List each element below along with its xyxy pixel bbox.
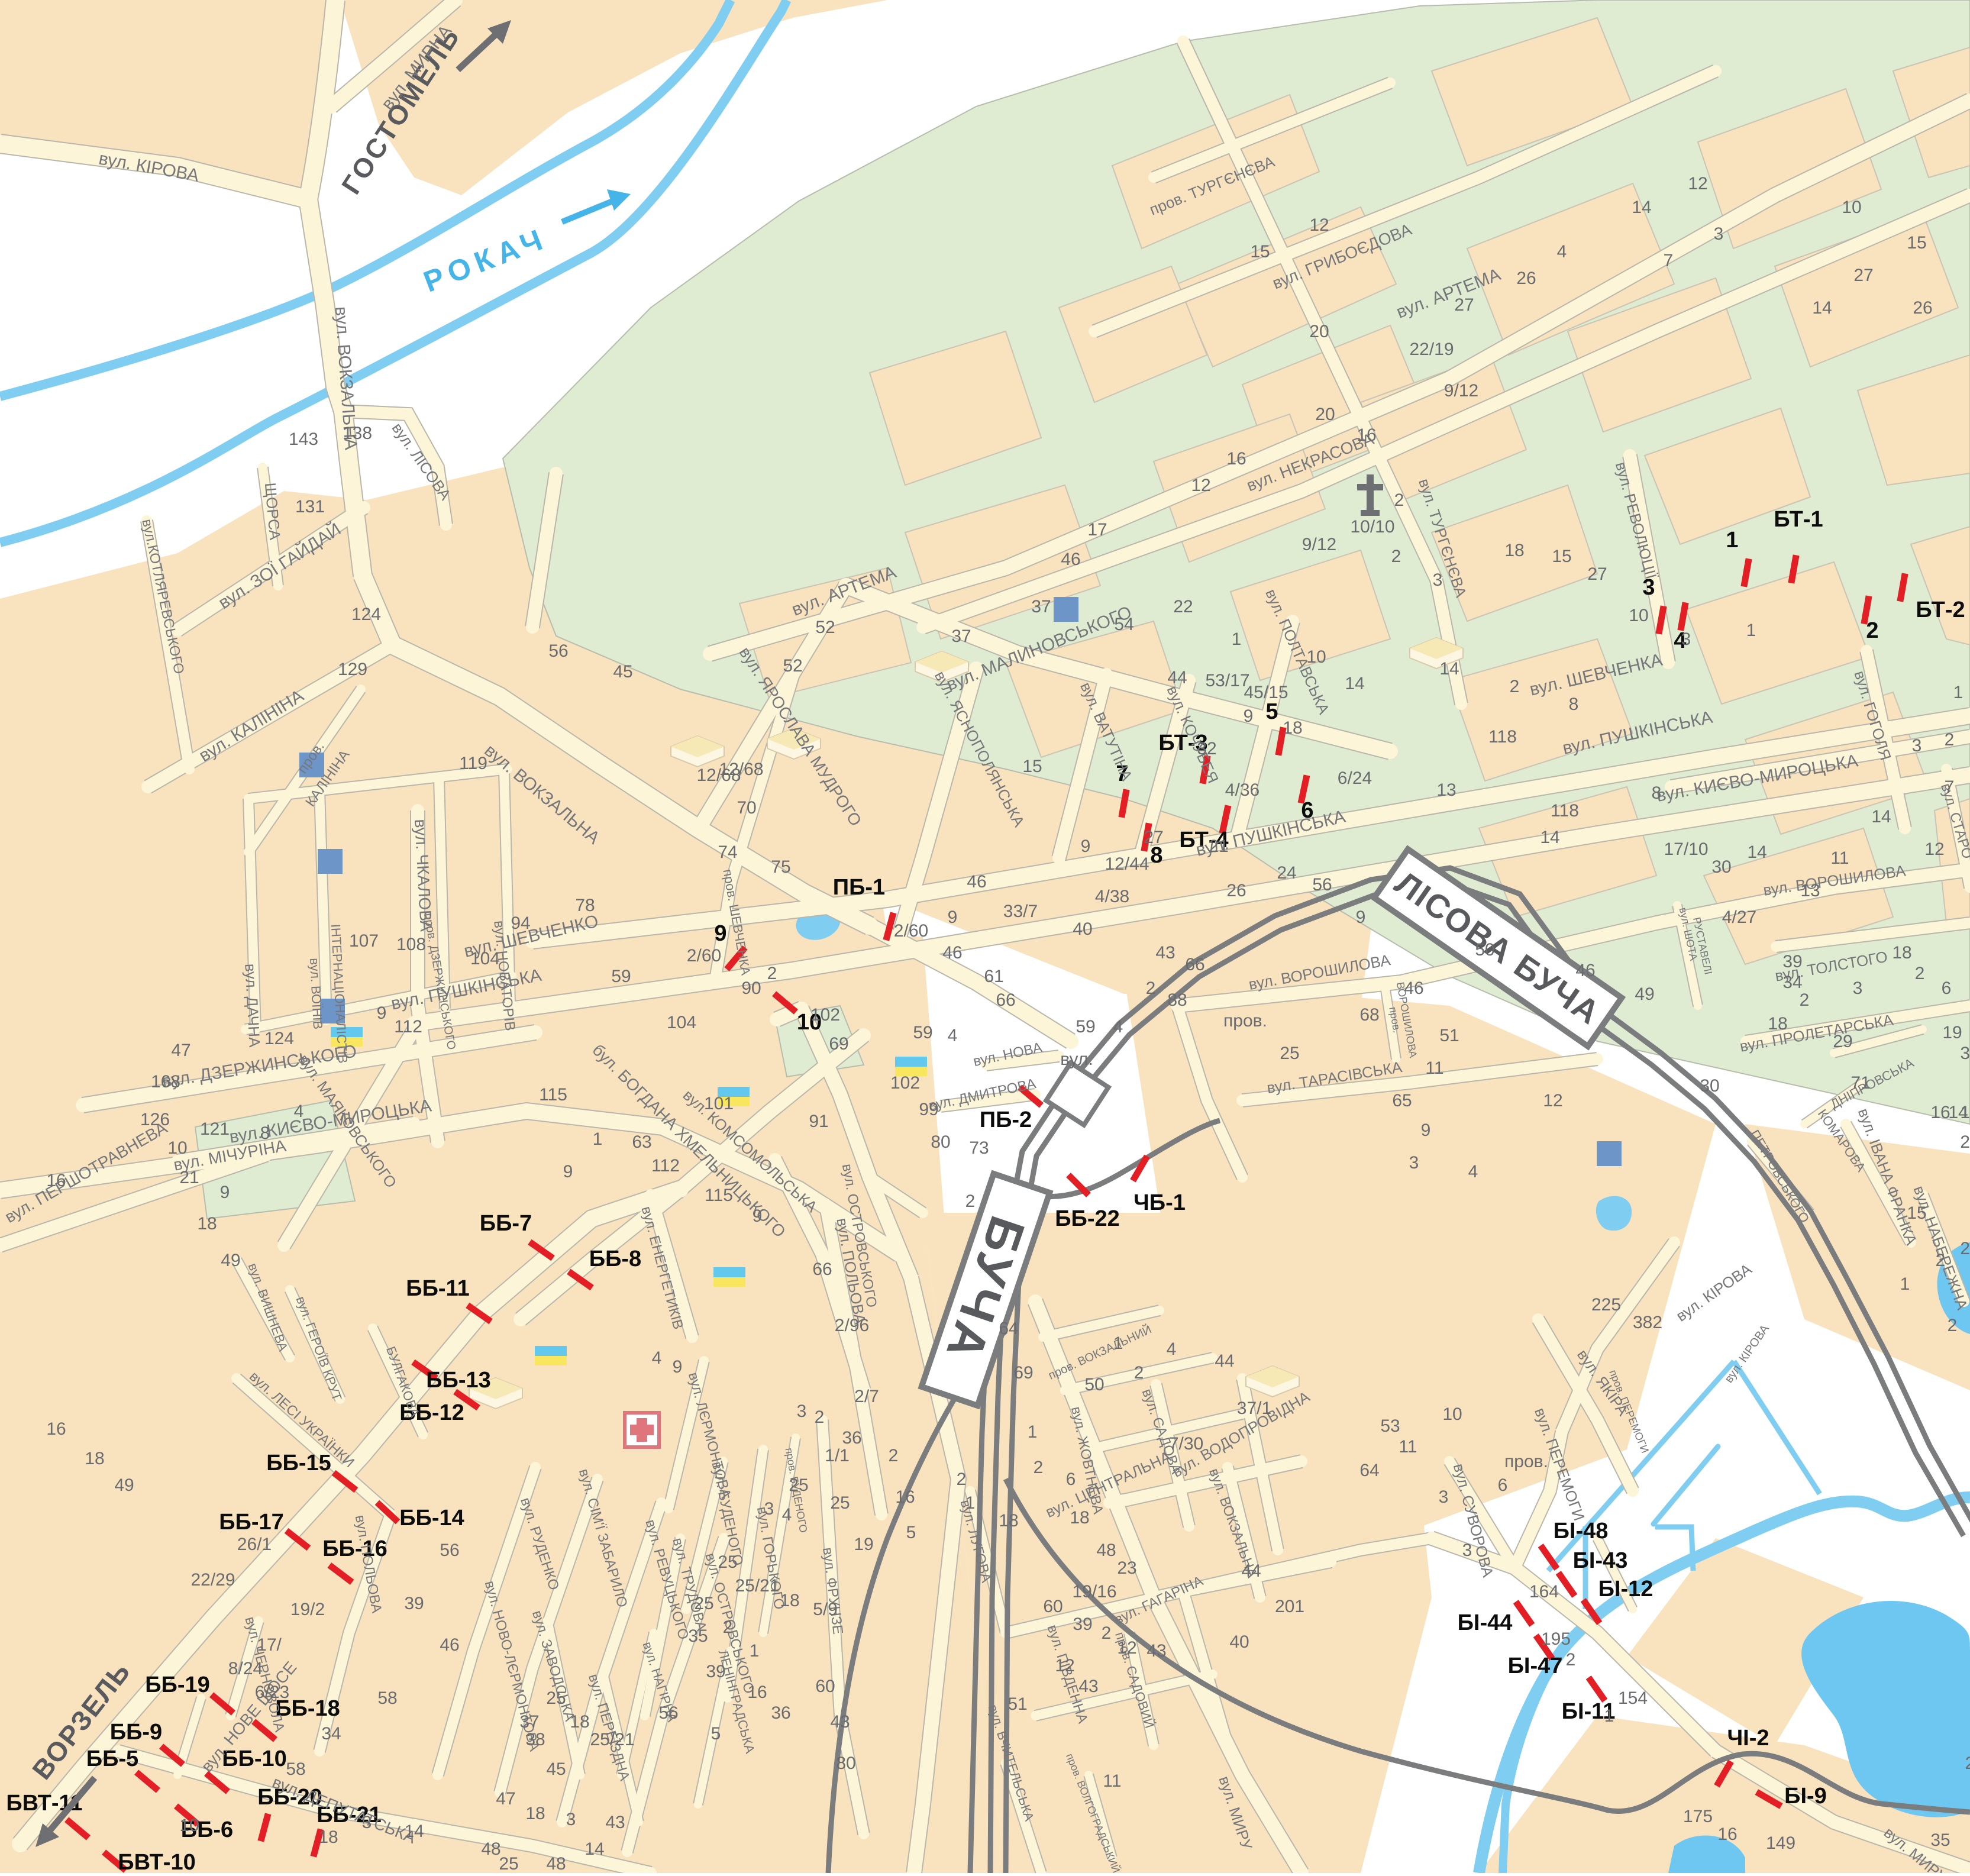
svg-text:9: 9 xyxy=(1356,908,1366,927)
svg-text:107: 107 xyxy=(349,931,379,951)
svg-text:ББ-8: ББ-8 xyxy=(589,1247,641,1271)
svg-text:149: 149 xyxy=(1766,1833,1795,1853)
svg-text:4: 4 xyxy=(294,1102,304,1121)
svg-text:91: 91 xyxy=(809,1112,828,1131)
svg-text:18: 18 xyxy=(1283,718,1302,738)
svg-text:108: 108 xyxy=(396,935,426,954)
svg-text:16: 16 xyxy=(1717,1825,1737,1844)
svg-text:68: 68 xyxy=(1359,1005,1379,1025)
svg-text:43: 43 xyxy=(830,1712,850,1732)
svg-text:131: 131 xyxy=(295,497,325,516)
svg-text:ББ-5: ББ-5 xyxy=(86,1746,138,1771)
svg-text:9: 9 xyxy=(1421,1121,1431,1140)
svg-text:ББ-22: ББ-22 xyxy=(1055,1206,1120,1231)
svg-text:3: 3 xyxy=(1462,1541,1472,1560)
svg-text:2: 2 xyxy=(1948,1316,1958,1335)
svg-text:ББ-17: ББ-17 xyxy=(219,1510,284,1535)
svg-text:382: 382 xyxy=(1633,1313,1662,1332)
svg-text:2: 2 xyxy=(1800,990,1810,1010)
svg-text:6: 6 xyxy=(1942,979,1952,998)
svg-text:18: 18 xyxy=(1070,1508,1089,1528)
svg-text:18: 18 xyxy=(85,1449,104,1468)
svg-text:17: 17 xyxy=(1087,520,1107,540)
svg-text:59: 59 xyxy=(1076,1017,1095,1037)
svg-text:54: 54 xyxy=(1114,615,1133,634)
svg-text:ЧІ-2: ЧІ-2 xyxy=(1727,1726,1769,1751)
svg-text:64: 64 xyxy=(1359,1461,1379,1480)
svg-text:1: 1 xyxy=(750,1641,760,1661)
svg-text:8: 8 xyxy=(260,1123,270,1143)
svg-text:51: 51 xyxy=(1439,1026,1459,1045)
svg-text:2: 2 xyxy=(889,1446,899,1465)
svg-text:2: 2 xyxy=(1915,964,1925,983)
svg-text:88: 88 xyxy=(1167,990,1187,1010)
svg-text:БІ-9: БІ-9 xyxy=(1784,1784,1827,1809)
svg-text:2/96: 2/96 xyxy=(835,1316,869,1335)
svg-text:4: 4 xyxy=(652,1348,662,1368)
svg-text:27: 27 xyxy=(1587,564,1607,584)
svg-text:38: 38 xyxy=(525,1730,545,1749)
svg-text:43: 43 xyxy=(605,1813,625,1832)
svg-text:16: 16 xyxy=(1226,449,1246,469)
svg-text:49: 49 xyxy=(1635,984,1654,1004)
svg-text:10: 10 xyxy=(1842,198,1861,217)
svg-text:9/12: 9/12 xyxy=(1444,381,1478,401)
svg-text:БІ-48: БІ-48 xyxy=(1554,1519,1609,1544)
svg-text:14: 14 xyxy=(1439,659,1459,679)
svg-text:10: 10 xyxy=(179,1816,199,1835)
svg-text:64: 64 xyxy=(999,1319,1018,1338)
svg-text:17/10: 17/10 xyxy=(1664,839,1708,859)
svg-text:12: 12 xyxy=(1960,1103,1970,1122)
svg-text:18: 18 xyxy=(1892,943,1911,963)
svg-text:3: 3 xyxy=(1439,1487,1449,1507)
svg-text:43: 43 xyxy=(1155,943,1175,963)
svg-text:99: 99 xyxy=(919,1100,938,1119)
svg-text:12/68: 12/68 xyxy=(696,766,741,785)
svg-text:102: 102 xyxy=(890,1073,920,1093)
svg-text:119: 119 xyxy=(459,754,487,773)
svg-text:60: 60 xyxy=(1043,1597,1062,1616)
svg-text:50: 50 xyxy=(1475,940,1494,960)
svg-text:15: 15 xyxy=(1552,547,1571,566)
svg-text:59: 59 xyxy=(611,967,631,986)
svg-text:15: 15 xyxy=(1022,757,1042,776)
svg-text:34: 34 xyxy=(1782,973,1802,992)
svg-text:37: 37 xyxy=(951,627,971,646)
svg-text:13: 13 xyxy=(1436,780,1456,800)
svg-text:112: 112 xyxy=(394,1017,422,1037)
svg-text:ПБ-1: ПБ-1 xyxy=(833,875,885,900)
svg-text:124: 124 xyxy=(264,1029,294,1048)
svg-text:70: 70 xyxy=(737,798,756,818)
svg-text:104: 104 xyxy=(667,1013,696,1032)
svg-text:37: 37 xyxy=(1031,597,1051,616)
svg-text:11: 11 xyxy=(1399,1437,1417,1457)
svg-text:15: 15 xyxy=(1250,242,1270,261)
svg-text:56: 56 xyxy=(548,641,568,661)
svg-text:66: 66 xyxy=(996,990,1015,1010)
svg-text:101: 101 xyxy=(704,1094,734,1113)
svg-text:48: 48 xyxy=(546,1854,566,1873)
svg-text:20: 20 xyxy=(1315,405,1335,424)
svg-text:6/24: 6/24 xyxy=(1338,769,1372,788)
svg-text:138: 138 xyxy=(343,424,372,443)
svg-text:56: 56 xyxy=(440,1541,459,1560)
svg-text:51: 51 xyxy=(1007,1694,1027,1714)
svg-text:69: 69 xyxy=(829,1034,848,1054)
svg-text:23: 23 xyxy=(1117,1558,1136,1578)
svg-text:2: 2 xyxy=(1146,979,1156,998)
svg-text:ПБ-2: ПБ-2 xyxy=(980,1107,1032,1132)
svg-text:143: 143 xyxy=(289,430,318,449)
svg-text:154: 154 xyxy=(1618,1688,1648,1708)
svg-text:1: 1 xyxy=(1746,621,1756,640)
svg-text:80: 80 xyxy=(931,1132,950,1152)
svg-text:66: 66 xyxy=(1185,955,1204,974)
svg-text:16: 16 xyxy=(46,1419,66,1439)
svg-text:71: 71 xyxy=(1850,1073,1870,1093)
svg-text:15: 15 xyxy=(1907,233,1926,253)
svg-text:59: 59 xyxy=(913,1023,932,1042)
svg-text:30: 30 xyxy=(1711,857,1731,877)
svg-text:1: 1 xyxy=(1604,1706,1614,1726)
svg-text:14: 14 xyxy=(1345,674,1364,693)
svg-text:13: 13 xyxy=(1800,881,1820,900)
svg-text:46: 46 xyxy=(1575,961,1595,980)
svg-text:7/30: 7/30 xyxy=(1169,1434,1203,1454)
svg-text:90: 90 xyxy=(741,979,761,998)
svg-text:45: 45 xyxy=(613,662,632,682)
svg-text:37/1: 37/1 xyxy=(1237,1399,1271,1418)
svg-text:49: 49 xyxy=(114,1475,134,1495)
svg-text:2/7: 2/7 xyxy=(854,1387,879,1406)
svg-text:11: 11 xyxy=(1425,1058,1443,1078)
svg-text:12: 12 xyxy=(1191,476,1210,495)
svg-text:39: 39 xyxy=(706,1662,725,1681)
svg-text:25: 25 xyxy=(1280,1044,1299,1063)
svg-text:1: 1 xyxy=(593,1129,603,1149)
svg-text:1: 1 xyxy=(1028,1422,1038,1442)
svg-text:2/60: 2/60 xyxy=(894,921,928,941)
svg-text:25: 25 xyxy=(789,1475,808,1495)
svg-text:37: 37 xyxy=(519,1712,539,1732)
svg-text:1: 1 xyxy=(1113,1333,1123,1353)
svg-text:78: 78 xyxy=(575,896,595,915)
svg-text:БІ-43: БІ-43 xyxy=(1573,1548,1628,1573)
svg-text:1: 1 xyxy=(965,1493,976,1513)
svg-text:44: 44 xyxy=(1167,668,1187,687)
svg-text:35: 35 xyxy=(688,1626,708,1646)
svg-text:16: 16 xyxy=(1357,425,1376,445)
svg-text:19/2: 19/2 xyxy=(290,1600,325,1619)
svg-text:12: 12 xyxy=(1309,215,1329,235)
svg-text:6: 6 xyxy=(1066,1470,1076,1489)
svg-text:25/21: 25/21 xyxy=(735,1576,779,1596)
svg-text:2: 2 xyxy=(1566,1650,1576,1670)
svg-text:195: 195 xyxy=(1541,1629,1571,1649)
svg-text:26: 26 xyxy=(1516,269,1536,288)
svg-text:2: 2 xyxy=(1134,1363,1144,1383)
svg-text:6/23: 6/23 xyxy=(255,1683,289,1702)
svg-text:18: 18 xyxy=(525,1804,545,1823)
svg-text:БТ-1: БТ-1 xyxy=(1774,507,1823,532)
svg-text:10: 10 xyxy=(1442,1404,1462,1424)
svg-text:1: 1 xyxy=(1232,629,1242,649)
svg-text:3: 3 xyxy=(764,1499,774,1519)
svg-text:11: 11 xyxy=(1830,848,1849,868)
svg-text:20: 20 xyxy=(1309,322,1329,341)
svg-text:18: 18 xyxy=(197,1214,217,1234)
svg-text:15: 15 xyxy=(1907,1203,1926,1223)
svg-text:65: 65 xyxy=(1392,1091,1412,1110)
svg-text:164: 164 xyxy=(1529,1582,1559,1601)
svg-text:12/44: 12/44 xyxy=(1105,854,1149,874)
svg-text:ББ-16: ББ-16 xyxy=(322,1536,387,1561)
svg-text:126: 126 xyxy=(140,1110,170,1129)
svg-text:39: 39 xyxy=(1782,952,1802,971)
svg-text:24: 24 xyxy=(1277,863,1296,883)
svg-text:102: 102 xyxy=(810,1005,840,1025)
svg-text:44: 44 xyxy=(1215,1351,1234,1371)
svg-text:27: 27 xyxy=(1144,828,1163,847)
svg-text:17/: 17/ xyxy=(257,1635,282,1655)
svg-text:4: 4 xyxy=(1113,1017,1123,1037)
svg-text:7: 7 xyxy=(1945,777,1955,797)
svg-text:пров.: пров. xyxy=(1504,1452,1548,1471)
svg-text:16: 16 xyxy=(1930,1103,1950,1122)
svg-text:18: 18 xyxy=(1768,1014,1787,1034)
svg-text:48: 48 xyxy=(1096,1541,1116,1560)
svg-text:225: 225 xyxy=(1591,1295,1621,1315)
svg-text:9: 9 xyxy=(220,1183,230,1202)
svg-text:22/29: 22/29 xyxy=(190,1570,235,1590)
svg-text:9: 9 xyxy=(1244,706,1254,726)
svg-text:18: 18 xyxy=(570,1712,589,1732)
svg-text:2: 2 xyxy=(1866,618,1878,643)
svg-text:46: 46 xyxy=(1061,550,1080,569)
svg-text:66: 66 xyxy=(812,1260,832,1279)
svg-text:12: 12 xyxy=(1117,1638,1136,1658)
svg-text:ББ-15: ББ-15 xyxy=(266,1451,331,1475)
svg-text:9: 9 xyxy=(753,1206,763,1226)
svg-text:34: 34 xyxy=(321,1724,341,1743)
svg-text:БІ-47: БІ-47 xyxy=(1508,1654,1563,1678)
svg-text:35: 35 xyxy=(1930,1830,1950,1850)
svg-text:2: 2 xyxy=(1102,1623,1112,1643)
svg-text:10/10: 10/10 xyxy=(1350,517,1394,537)
svg-text:10: 10 xyxy=(1306,647,1326,667)
svg-text:6: 6 xyxy=(1498,1475,1508,1495)
svg-text:9: 9 xyxy=(948,908,958,927)
svg-text:4: 4 xyxy=(948,1026,958,1045)
svg-text:22: 22 xyxy=(1173,597,1193,616)
svg-text:9: 9 xyxy=(377,1003,387,1023)
svg-text:25: 25 xyxy=(718,1552,737,1572)
svg-text:12: 12 xyxy=(1055,1656,1074,1675)
svg-text:8/24: 8/24 xyxy=(228,1659,263,1678)
svg-text:3: 3 xyxy=(1714,224,1724,244)
svg-text:60: 60 xyxy=(815,1677,835,1696)
svg-text:75: 75 xyxy=(771,857,790,877)
svg-text:121: 121 xyxy=(200,1119,230,1139)
svg-text:168: 168 xyxy=(151,1072,180,1092)
svg-text:3: 3 xyxy=(1853,979,1863,998)
svg-text:25/21: 25/21 xyxy=(590,1730,634,1749)
svg-text:3: 3 xyxy=(566,1810,576,1829)
svg-text:2: 2 xyxy=(1391,547,1401,566)
svg-text:46: 46 xyxy=(942,943,962,963)
svg-text:29: 29 xyxy=(1833,1032,1852,1051)
svg-text:8: 8 xyxy=(1652,783,1662,803)
svg-text:10: 10 xyxy=(167,1138,187,1158)
svg-text:26: 26 xyxy=(1226,881,1246,900)
svg-text:124: 124 xyxy=(351,605,381,624)
svg-text:25: 25 xyxy=(1960,1239,1970,1258)
svg-text:112: 112 xyxy=(651,1156,680,1176)
svg-text:3: 3 xyxy=(1409,1153,1419,1173)
svg-text:25: 25 xyxy=(830,1493,850,1513)
svg-text:3: 3 xyxy=(797,1402,807,1421)
svg-text:22/19: 22/19 xyxy=(1409,340,1454,359)
svg-text:2: 2 xyxy=(1034,1458,1044,1477)
svg-text:ББ-11: ББ-11 xyxy=(406,1276,469,1301)
svg-text:14: 14 xyxy=(1871,807,1891,826)
svg-text:16: 16 xyxy=(895,1487,915,1507)
svg-text:27: 27 xyxy=(1454,295,1474,315)
svg-text:94: 94 xyxy=(511,913,530,933)
svg-text:14: 14 xyxy=(1632,198,1651,217)
svg-text:74: 74 xyxy=(718,842,737,862)
svg-text:14: 14 xyxy=(1540,828,1559,847)
svg-text:61: 61 xyxy=(984,967,1003,986)
svg-text:2/60: 2/60 xyxy=(687,946,721,966)
svg-text:45: 45 xyxy=(546,1759,566,1779)
svg-text:9: 9 xyxy=(1081,837,1091,856)
svg-text:9: 9 xyxy=(563,1162,573,1181)
svg-text:34: 34 xyxy=(1960,1044,1970,1063)
svg-text:46: 46 xyxy=(1404,979,1423,998)
svg-text:2: 2 xyxy=(957,1470,967,1489)
svg-text:80: 80 xyxy=(836,1754,855,1773)
svg-text:8: 8 xyxy=(1569,695,1579,714)
svg-text:52: 52 xyxy=(783,656,802,676)
svg-text:2: 2 xyxy=(1510,677,1520,696)
svg-text:2: 2 xyxy=(1945,730,1955,750)
svg-text:48: 48 xyxy=(481,1839,500,1859)
svg-text:14: 14 xyxy=(584,1839,604,1859)
svg-text:12: 12 xyxy=(1543,1091,1562,1110)
svg-text:3: 3 xyxy=(1912,736,1922,755)
svg-text:10: 10 xyxy=(1629,606,1648,625)
svg-text:12: 12 xyxy=(1924,839,1944,859)
svg-text:14: 14 xyxy=(1812,298,1832,318)
svg-text:11: 11 xyxy=(1103,1771,1121,1791)
svg-text:40: 40 xyxy=(1073,919,1092,939)
svg-text:53/17: 53/17 xyxy=(1205,671,1249,690)
svg-text:39: 39 xyxy=(1073,1615,1092,1634)
svg-text:1/1: 1/1 xyxy=(825,1446,850,1465)
svg-text:56: 56 xyxy=(658,1703,678,1723)
svg-text:9/12: 9/12 xyxy=(1302,535,1336,554)
svg-text:115: 115 xyxy=(539,1085,567,1105)
svg-text:44: 44 xyxy=(1241,1561,1261,1581)
svg-text:26/1: 26/1 xyxy=(237,1535,272,1554)
svg-text:3: 3 xyxy=(1433,570,1443,590)
svg-text:33/7: 33/7 xyxy=(1003,902,1038,921)
svg-text:45/15: 45/15 xyxy=(1244,683,1288,702)
svg-text:104: 104 xyxy=(470,949,500,968)
svg-text:пров.: пров. xyxy=(1223,1011,1267,1031)
svg-text:4/36: 4/36 xyxy=(1225,780,1259,800)
svg-text:25: 25 xyxy=(499,1854,518,1873)
svg-text:5/9: 5/9 xyxy=(813,1600,838,1619)
svg-text:63: 63 xyxy=(632,1132,651,1152)
svg-text:53: 53 xyxy=(1380,1416,1400,1436)
svg-text:1: 1 xyxy=(1900,1274,1910,1294)
svg-text:1: 1 xyxy=(1953,683,1963,702)
svg-text:БІ-44: БІ-44 xyxy=(1458,1610,1513,1635)
svg-text:ББ-14: ББ-14 xyxy=(399,1506,464,1530)
svg-text:4: 4 xyxy=(1557,242,1567,261)
svg-text:47: 47 xyxy=(171,1041,190,1060)
svg-text:19: 19 xyxy=(854,1535,873,1554)
svg-text:3: 3 xyxy=(1681,629,1691,649)
svg-text:БВТ-10: БВТ-10 xyxy=(118,1850,195,1873)
svg-text:18: 18 xyxy=(1504,541,1524,560)
svg-text:9: 9 xyxy=(714,921,726,946)
svg-text:25: 25 xyxy=(1960,1132,1970,1152)
svg-text:30: 30 xyxy=(1700,1076,1719,1096)
svg-text:16: 16 xyxy=(747,1683,767,1702)
svg-text:12: 12 xyxy=(1688,174,1707,193)
svg-text:50: 50 xyxy=(1084,1375,1104,1394)
svg-text:25: 25 xyxy=(546,1688,566,1708)
svg-text:73: 73 xyxy=(969,1138,989,1158)
svg-text:21: 21 xyxy=(179,1168,199,1187)
svg-text:вул.: вул. xyxy=(1060,1050,1093,1069)
svg-text:18: 18 xyxy=(999,1511,1018,1530)
svg-text:3: 3 xyxy=(362,1813,372,1832)
svg-text:2: 2 xyxy=(965,1192,976,1211)
svg-text:115: 115 xyxy=(705,1186,733,1205)
svg-text:ББ-9: ББ-9 xyxy=(110,1720,162,1745)
svg-text:2: 2 xyxy=(1936,1251,1946,1270)
svg-text:21: 21 xyxy=(1209,837,1228,856)
svg-text:БІ-12: БІ-12 xyxy=(1598,1577,1653,1601)
svg-text:БТ-2: БТ-2 xyxy=(1916,598,1965,622)
svg-text:46: 46 xyxy=(967,872,986,892)
svg-text:49: 49 xyxy=(221,1251,240,1270)
svg-text:2: 2 xyxy=(1394,490,1404,510)
svg-text:7: 7 xyxy=(1664,251,1674,270)
svg-text:1: 1 xyxy=(1726,528,1738,553)
svg-text:36: 36 xyxy=(771,1703,790,1723)
svg-text:5: 5 xyxy=(906,1523,916,1542)
svg-text:118: 118 xyxy=(1488,727,1517,747)
svg-text:18: 18 xyxy=(318,1827,338,1847)
svg-text:ББ-7: ББ-7 xyxy=(480,1211,532,1236)
svg-text:2: 2 xyxy=(767,964,777,983)
svg-text:ББ-13: ББ-13 xyxy=(426,1368,491,1393)
svg-text:58: 58 xyxy=(377,1688,397,1708)
svg-text:19: 19 xyxy=(1942,1023,1962,1042)
svg-text:14: 14 xyxy=(1747,842,1766,862)
svg-text:19/16: 19/16 xyxy=(1072,1582,1116,1601)
svg-text:175: 175 xyxy=(1683,1807,1713,1826)
svg-text:4: 4 xyxy=(1468,1162,1478,1181)
svg-text:ЧБ-1: ЧБ-1 xyxy=(1133,1190,1186,1215)
